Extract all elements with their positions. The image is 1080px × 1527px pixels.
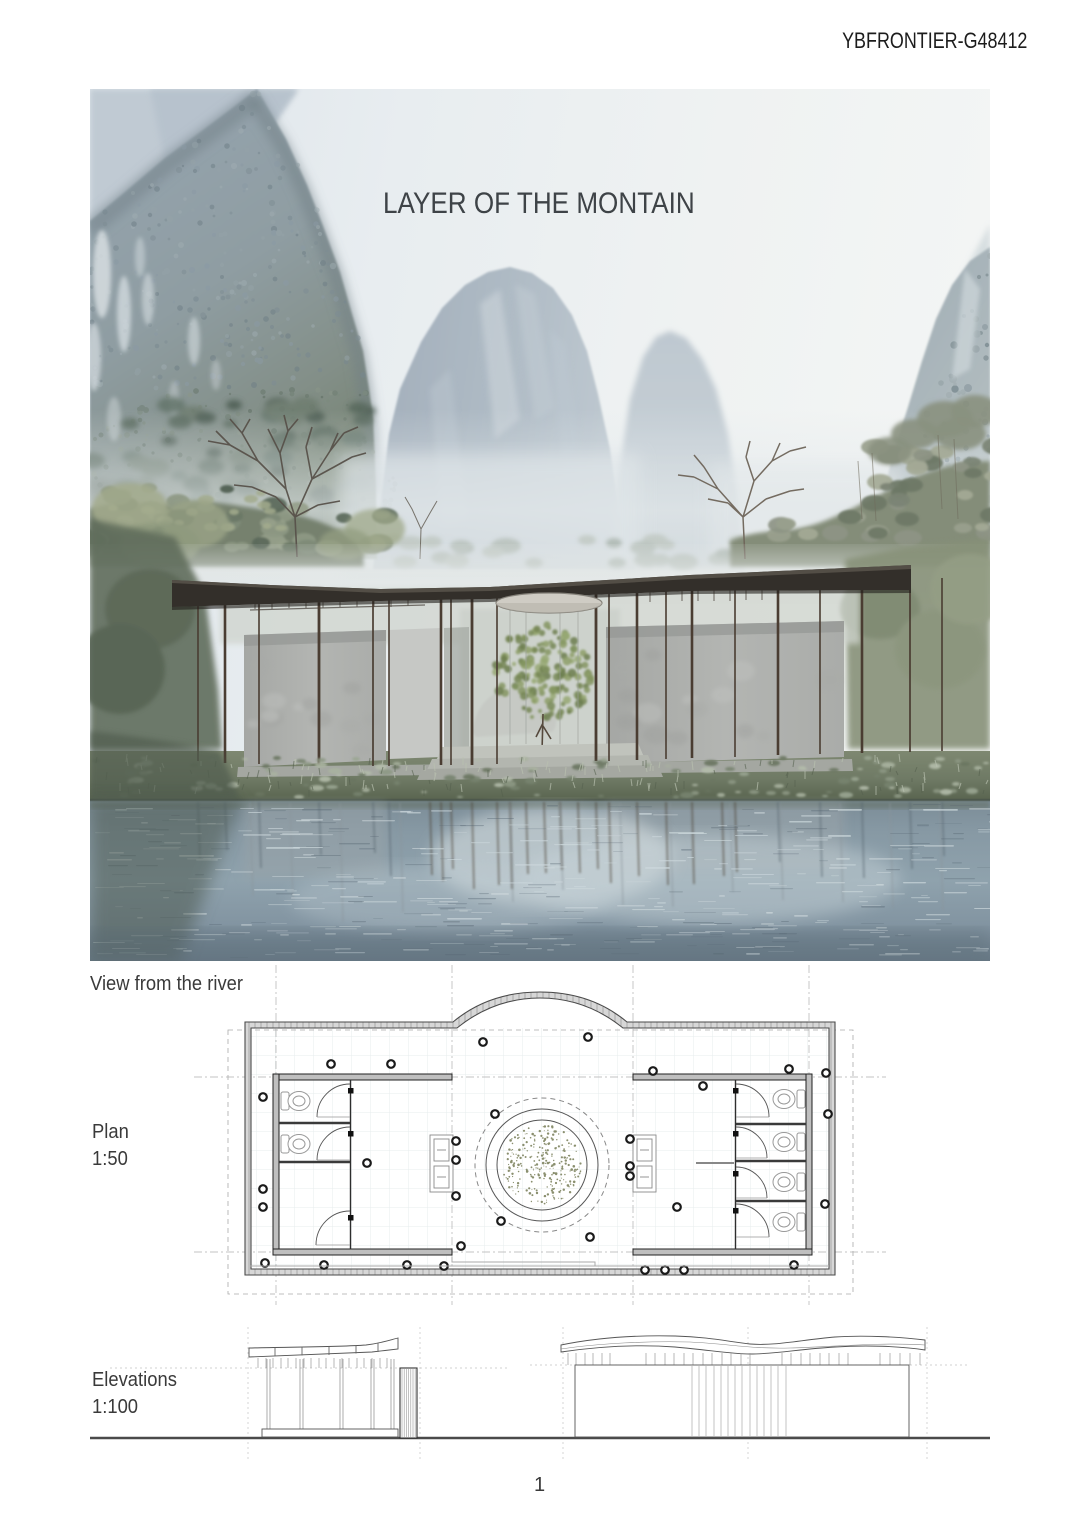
svg-text:LAYER OF THE MONTAIN: LAYER OF THE MONTAIN [383, 186, 695, 219]
